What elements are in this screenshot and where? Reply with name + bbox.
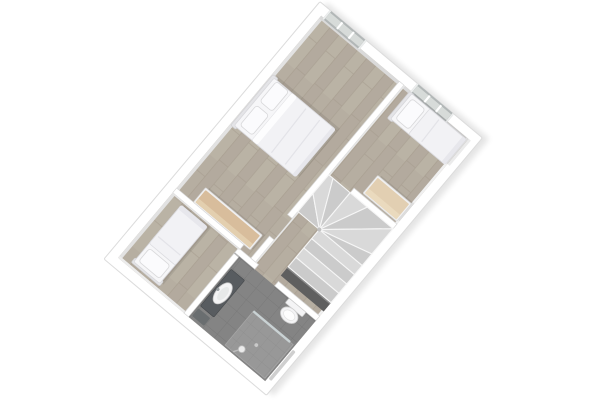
floorplan-page: [0, 0, 600, 400]
floorplan-image: [0, 0, 600, 400]
